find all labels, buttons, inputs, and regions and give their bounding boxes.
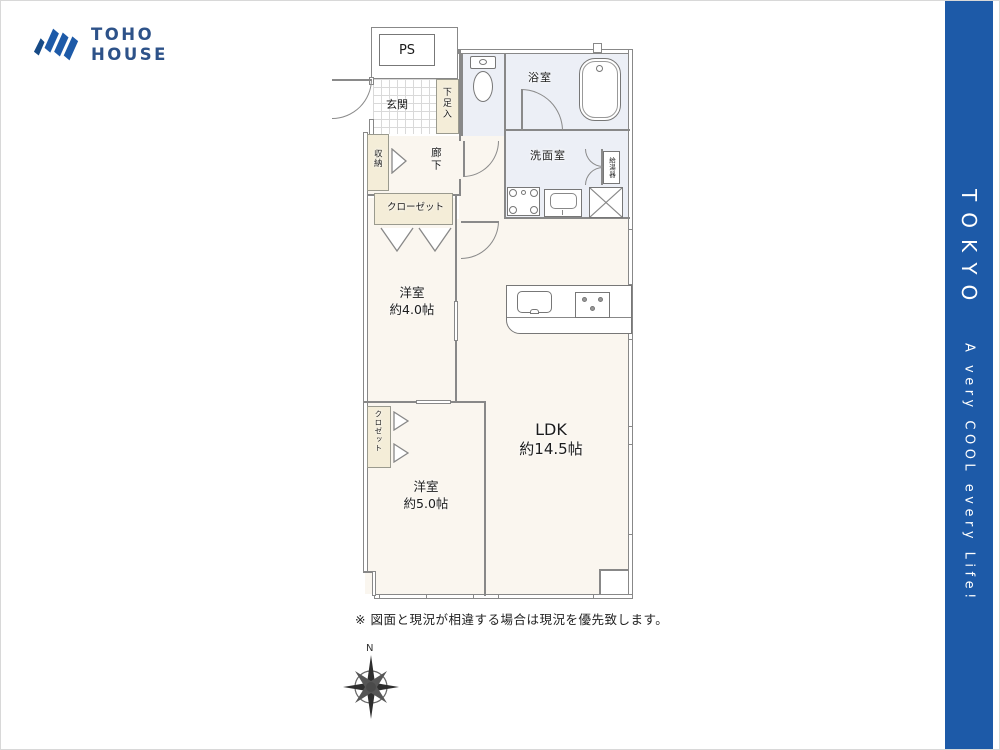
- window-tick: [628, 339, 633, 340]
- label-ldk-name: LDK: [486, 419, 616, 440]
- wall-left: [363, 132, 368, 573]
- closet-b-door-icon-bottom: [393, 443, 409, 463]
- flyer-page: TOHO HOUSE TOKYO A very COOL every Life!: [0, 0, 1000, 750]
- wall: [459, 136, 461, 141]
- window-tick: [473, 594, 474, 599]
- label-entrance: 玄関: [386, 98, 408, 113]
- washer-pan-drain: [521, 190, 526, 195]
- kitchen-sink-tap: [530, 309, 539, 314]
- label-ldk-size: 約14.5帖: [486, 440, 616, 460]
- window-tick: [628, 426, 633, 427]
- vanity-basin: [550, 193, 577, 209]
- label-corridor: 廊下: [428, 147, 442, 172]
- wall-notch: [599, 569, 628, 594]
- bathtub-drain-icon: [596, 65, 603, 72]
- floor-plan: PS 給湯器: [1, 1, 1000, 750]
- label-bedroom-b: 洋室 約5.0帖: [381, 479, 471, 512]
- label-closet-b: クロゼット: [373, 410, 383, 453]
- room-ldk: [457, 219, 628, 594]
- label-water-heater: 給湯器: [607, 157, 617, 178]
- label-bedroom-b-size: 約5.0帖: [381, 496, 471, 513]
- kitchen-stove-icon: [575, 292, 610, 318]
- compass-rose-icon: [341, 654, 401, 720]
- label-bedroom-a-name: 洋室: [367, 285, 457, 302]
- window-tick: [628, 534, 633, 535]
- wall-bottom: [374, 594, 633, 599]
- compass: N: [339, 642, 403, 726]
- washer-pan-corner: [530, 206, 538, 214]
- wall: [461, 54, 463, 136]
- closet-a-fold-door-icon: [380, 227, 452, 253]
- label-shoe-box: 下足入: [439, 87, 451, 120]
- window-tick: [379, 594, 380, 599]
- label-bedroom-a-size: 約4.0帖: [367, 302, 457, 319]
- washer-pan-corner: [530, 189, 538, 197]
- toilet-bowl-icon: [473, 71, 493, 102]
- washer-space-x: [590, 188, 622, 217]
- storage-door-icon: [391, 148, 407, 174]
- wall: [504, 53, 506, 219]
- label-bathroom: 浴室: [528, 71, 552, 86]
- disclaimer-note: ※ 図面と現況が相違する場合は現況を優先致します。: [355, 612, 668, 629]
- wall: [459, 179, 461, 196]
- closet-b-door-icon-top: [393, 411, 409, 431]
- label-ldk: LDK 約14.5帖: [486, 419, 616, 460]
- label-bedroom-a: 洋室 約4.0帖: [367, 285, 457, 318]
- toilet-button-icon: [479, 59, 487, 65]
- stove-burner: [582, 297, 587, 302]
- entrance-door-arc: [332, 79, 372, 119]
- ps-shaft: PS: [379, 34, 435, 66]
- wall: [599, 569, 601, 596]
- washer-pan-corner: [509, 206, 517, 214]
- window-tick: [498, 594, 499, 599]
- window-tick: [426, 594, 427, 599]
- kitchen-counter-edge: [507, 317, 631, 318]
- vanity-tap: [562, 210, 563, 215]
- label-ps: PS: [399, 43, 415, 58]
- window-tick: [628, 229, 633, 230]
- stove-burner: [590, 306, 595, 311]
- wall-top: [458, 49, 633, 54]
- label-closet-a: クローゼット: [387, 202, 444, 215]
- window-tick: [628, 444, 633, 445]
- sliding-door-bedroom-b: [416, 400, 451, 404]
- label-bedroom-b-name: 洋室: [381, 479, 471, 496]
- label-storage: 収納: [371, 149, 382, 168]
- wall-vent-stub: [593, 43, 602, 53]
- window-tick: [593, 594, 594, 599]
- wall-left-notch: [372, 571, 376, 596]
- label-washroom: 洗面室: [530, 149, 566, 164]
- stove-burner: [598, 297, 603, 302]
- wall: [599, 569, 629, 571]
- water-heater-box: 給湯器: [603, 151, 620, 184]
- washer-pan-corner: [509, 189, 517, 197]
